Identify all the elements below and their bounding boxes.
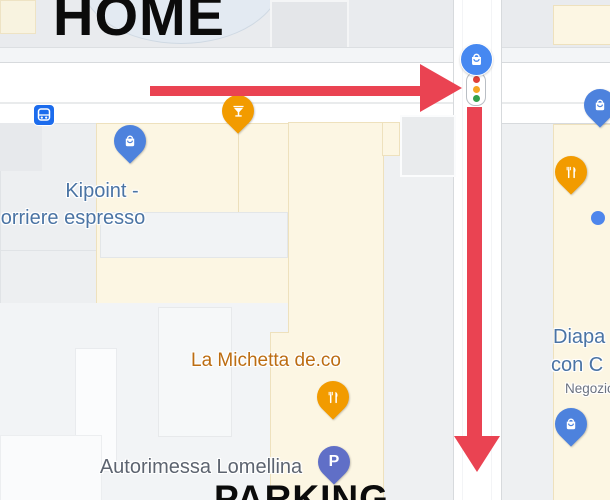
cocktail-glyph <box>222 95 254 127</box>
building-white-bottom-left <box>0 435 102 500</box>
building-lane-line <box>238 123 239 212</box>
shopping-bag-glyph <box>468 51 485 68</box>
autorimessa-label[interactable]: Autorimessa Lomellina <box>90 456 312 479</box>
right-bottom-shopping-pin[interactable] <box>548 401 593 446</box>
route-arrow-right-head <box>420 64 462 112</box>
restaurant-pin-right[interactable] <box>548 149 593 194</box>
building-gray-left-inner <box>0 123 42 171</box>
parking-annotation: PARKING <box>214 478 389 500</box>
fork-knife-glyph <box>317 381 349 413</box>
traffic-amber-light <box>473 86 480 93</box>
route-arrow-right-bar <box>150 86 421 96</box>
fork-knife-glyph <box>555 156 587 188</box>
vertical-road-lane-line <box>462 0 463 500</box>
bus-glyph <box>36 107 52 123</box>
building-top-gray <box>270 0 349 49</box>
traffic-red-light <box>473 76 480 83</box>
home-annotation: HOME <box>53 0 225 48</box>
small-poi-dot[interactable] <box>591 211 605 225</box>
right-store-label-line2[interactable]: con C <box>551 354 603 377</box>
restaurant-pin-center[interactable] <box>310 374 355 419</box>
kipoint-shopping-pin[interactable] <box>107 118 152 163</box>
route-arrow-down-head <box>454 436 500 472</box>
horizontal-road-lane-line <box>0 102 610 104</box>
building-cream-tower-nub <box>382 122 400 156</box>
traffic-green-light <box>473 95 480 102</box>
route-arrow-down-bar <box>467 107 482 437</box>
sidewalk-strip <box>0 47 610 63</box>
building-cream-center-tower <box>288 122 384 500</box>
vertical-road-lane-line <box>491 0 492 500</box>
parking-pin-letter: P <box>329 454 340 470</box>
building-cream-top-right <box>553 5 610 45</box>
traffic-light-icon <box>466 72 486 106</box>
shopping-badge-icon[interactable] <box>460 43 493 76</box>
right-store-label-line1[interactable]: Diapa <box>553 326 605 349</box>
kipoint-label-line2[interactable]: orriere espresso <box>0 207 158 230</box>
parking-pin[interactable]: P <box>311 439 356 484</box>
bus-stop-icon[interactable] <box>33 104 55 126</box>
kipoint-label-line1[interactable]: Kipoint - <box>40 180 164 203</box>
shopping-bag-glyph <box>114 125 146 157</box>
building-gray-right-of-center <box>400 115 456 177</box>
building-white-block <box>158 307 232 437</box>
right-store-label-line3[interactable]: Negozio <box>565 381 610 396</box>
building-top-left <box>0 0 36 34</box>
shopping-bag-glyph <box>555 408 587 440</box>
shopping-bag-glyph <box>584 89 610 121</box>
la-michetta-label[interactable]: La Michetta de.co <box>176 350 356 372</box>
map-screenshot: Kipoint - orriere espresso La Michetta d… <box>0 0 610 500</box>
